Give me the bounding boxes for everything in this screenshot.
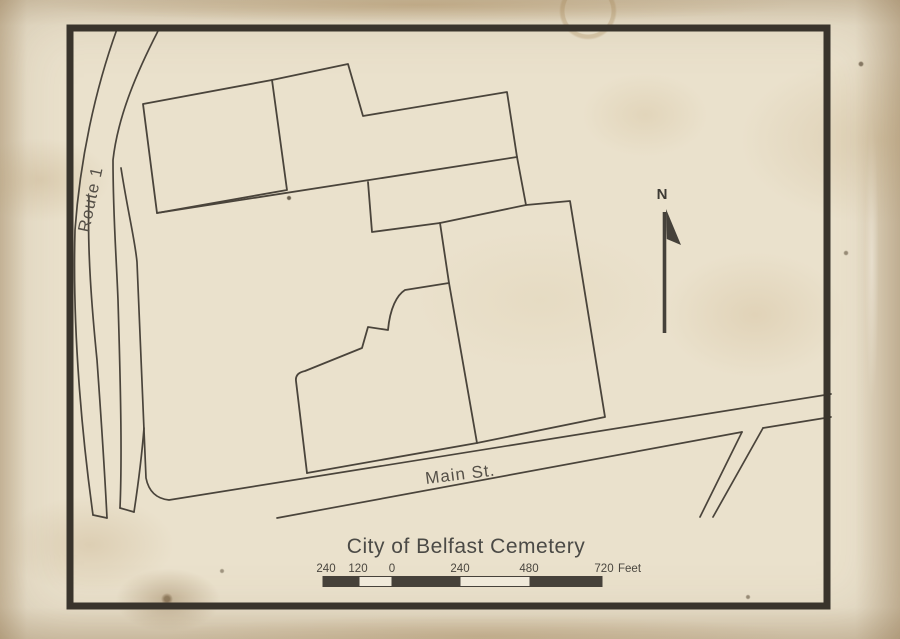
parcel-boundary-connector <box>517 157 526 205</box>
scale-bar: 240 120 0 240 480 720 Feet <box>316 563 641 587</box>
route1-label: Route 1 <box>74 165 106 234</box>
route1-inner-line-b <box>134 428 144 512</box>
parcel-boundary-long-diagonal <box>157 157 517 213</box>
scale-tick-720: 720 <box>594 563 613 575</box>
parcel-boundary-divider <box>440 223 477 443</box>
main-st-north-edge <box>121 168 831 500</box>
scale-bar-segment-3 <box>530 577 602 587</box>
scale-bar-segment-1 <box>323 577 359 587</box>
route1-end-cap-a <box>93 515 107 518</box>
scale-tick-120: 120 <box>348 563 367 575</box>
scale-tick-0: 0 <box>389 563 395 575</box>
scale-tick-240-right: 240 <box>450 563 469 575</box>
parcel-boundary-north-block <box>272 64 517 157</box>
scale-tick-240-left: 240 <box>316 563 335 575</box>
route1-inner-line-a <box>89 196 107 518</box>
aged-paper-background: N Route 1 Main St. City of Belfast Cemet… <box>0 0 900 639</box>
north-arrow-label: N <box>657 186 668 203</box>
map-title: City of Belfast Cemetery <box>347 535 585 558</box>
route1-road <box>75 29 158 518</box>
scale-tick-480: 480 <box>519 563 538 575</box>
parcel-boundaries <box>157 64 605 473</box>
scale-bar-segment-2 <box>392 577 460 587</box>
parcel-boundary-notched-edge <box>296 283 449 473</box>
cemetery-plat-map: N Route 1 Main St. City of Belfast Cemet… <box>0 0 900 639</box>
north-arrow-head <box>666 209 681 245</box>
route1-west-edge <box>75 29 117 515</box>
map-frame <box>70 28 827 606</box>
scale-unit-label: Feet <box>618 563 642 575</box>
north-arrow: N <box>657 186 681 333</box>
main-st-south-edge-east <box>763 417 831 428</box>
route1-end-cap-b <box>120 508 134 512</box>
highlighted-parcel <box>143 80 287 213</box>
parcel-boundary-west-stub <box>368 182 440 232</box>
parcel-boundary-east-block <box>440 201 605 443</box>
